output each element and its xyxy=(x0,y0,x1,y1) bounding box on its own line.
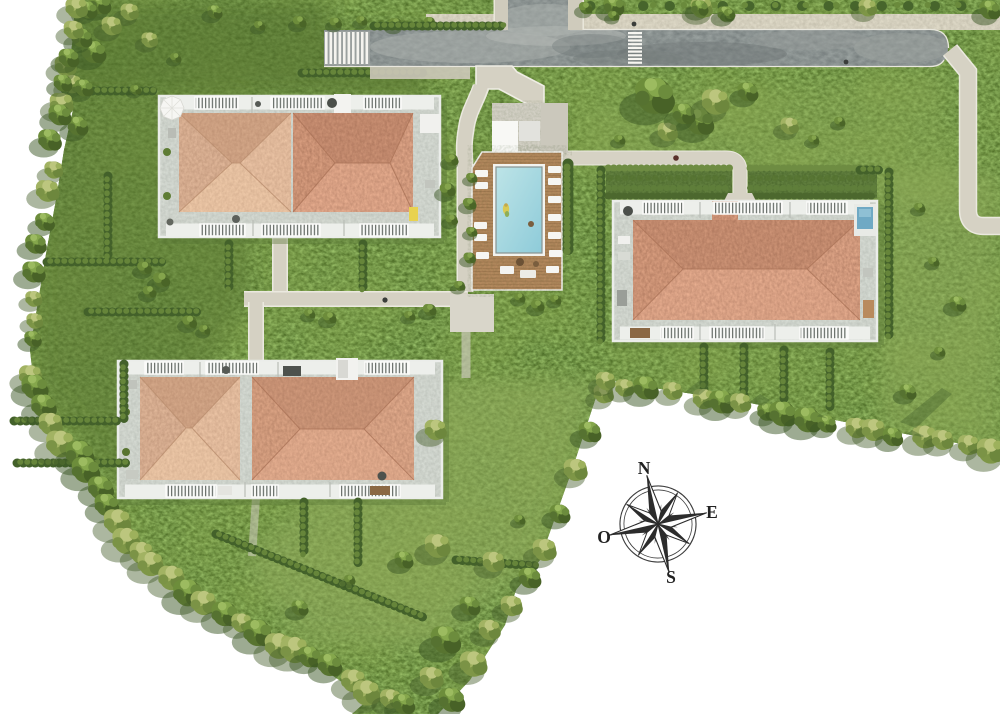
svg-text:E: E xyxy=(706,502,718,522)
svg-text:O: O xyxy=(597,527,611,547)
svg-text:S: S xyxy=(666,567,676,587)
svg-text:N: N xyxy=(638,458,651,478)
